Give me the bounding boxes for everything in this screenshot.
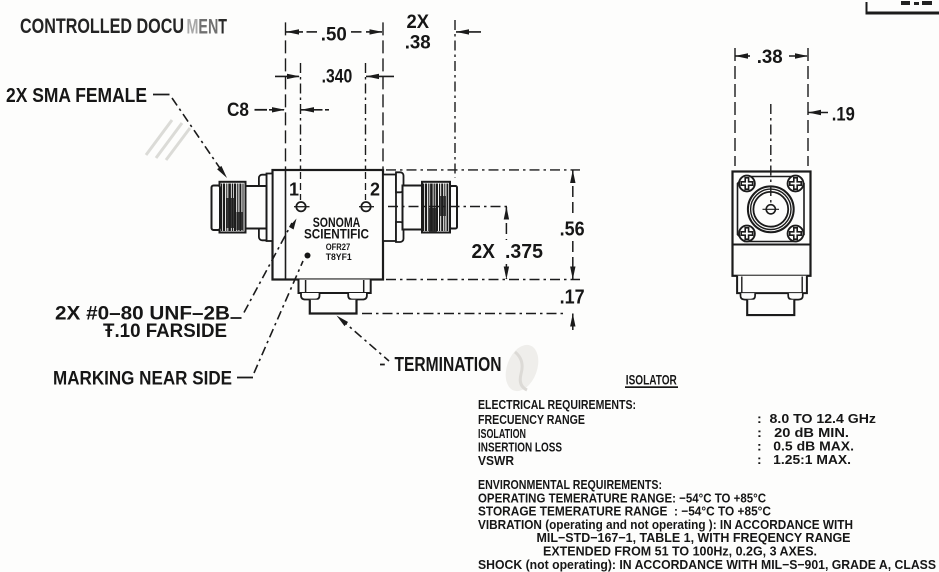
svg-text:Ŧ.10 FARSIDE: Ŧ.10 FARSIDE: [103, 321, 227, 342]
svg-text:FRECUENCY RANGE: FRECUENCY RANGE: [478, 412, 585, 427]
svg-text:TERMINATION: TERMINATION: [395, 354, 502, 376]
svg-text:.17: .17: [560, 287, 585, 309]
svg-text:MARKING NEAR SIDE: MARKING NEAR SIDE: [53, 369, 232, 390]
svg-text:2: 2: [370, 180, 380, 200]
svg-text:SHOCK (not operating): IN ACCO: SHOCK (not operating): IN ACCORDANCE WIT…: [478, 557, 936, 572]
svg-text:.375: .375: [505, 241, 543, 263]
svg-text:ISOLATOR: ISOLATOR: [626, 373, 677, 388]
svg-text:.19: .19: [832, 105, 855, 126]
svg-text:: 1.25:1 MAX.: : 1.25:1 MAX.: [757, 452, 851, 467]
svg-text:2X: 2X: [407, 12, 430, 33]
svg-text:SCIENTIFIC: SCIENTIFIC: [304, 227, 369, 242]
svg-text:CONTROLLED DOCU: CONTROLLED DOCU: [20, 14, 184, 38]
svg-text:.38: .38: [757, 47, 783, 68]
svg-text:C8: C8: [227, 100, 249, 121]
svg-text:MENT: MENT: [187, 15, 228, 39]
svg-text:.56: .56: [560, 219, 585, 241]
svg-text:: 8.0 TO 12.4 GHz: : 8.0 TO 12.4 GHz: [757, 411, 877, 426]
svg-text:1: 1: [289, 180, 299, 200]
svg-text:ELECTRICAL REQUIREMENTS:: ELECTRICAL REQUIREMENTS:: [478, 397, 636, 412]
svg-text:VSWR: VSWR: [478, 453, 515, 468]
svg-text:T8YF1: T8YF1: [326, 252, 353, 263]
svg-text:.38: .38: [405, 33, 431, 54]
svg-text:.340: .340: [322, 67, 353, 88]
svg-text:.50: .50: [321, 25, 347, 46]
svg-text:2X SMA FEMALE: 2X SMA FEMALE: [6, 85, 147, 107]
svg-text:2X: 2X: [472, 241, 496, 263]
